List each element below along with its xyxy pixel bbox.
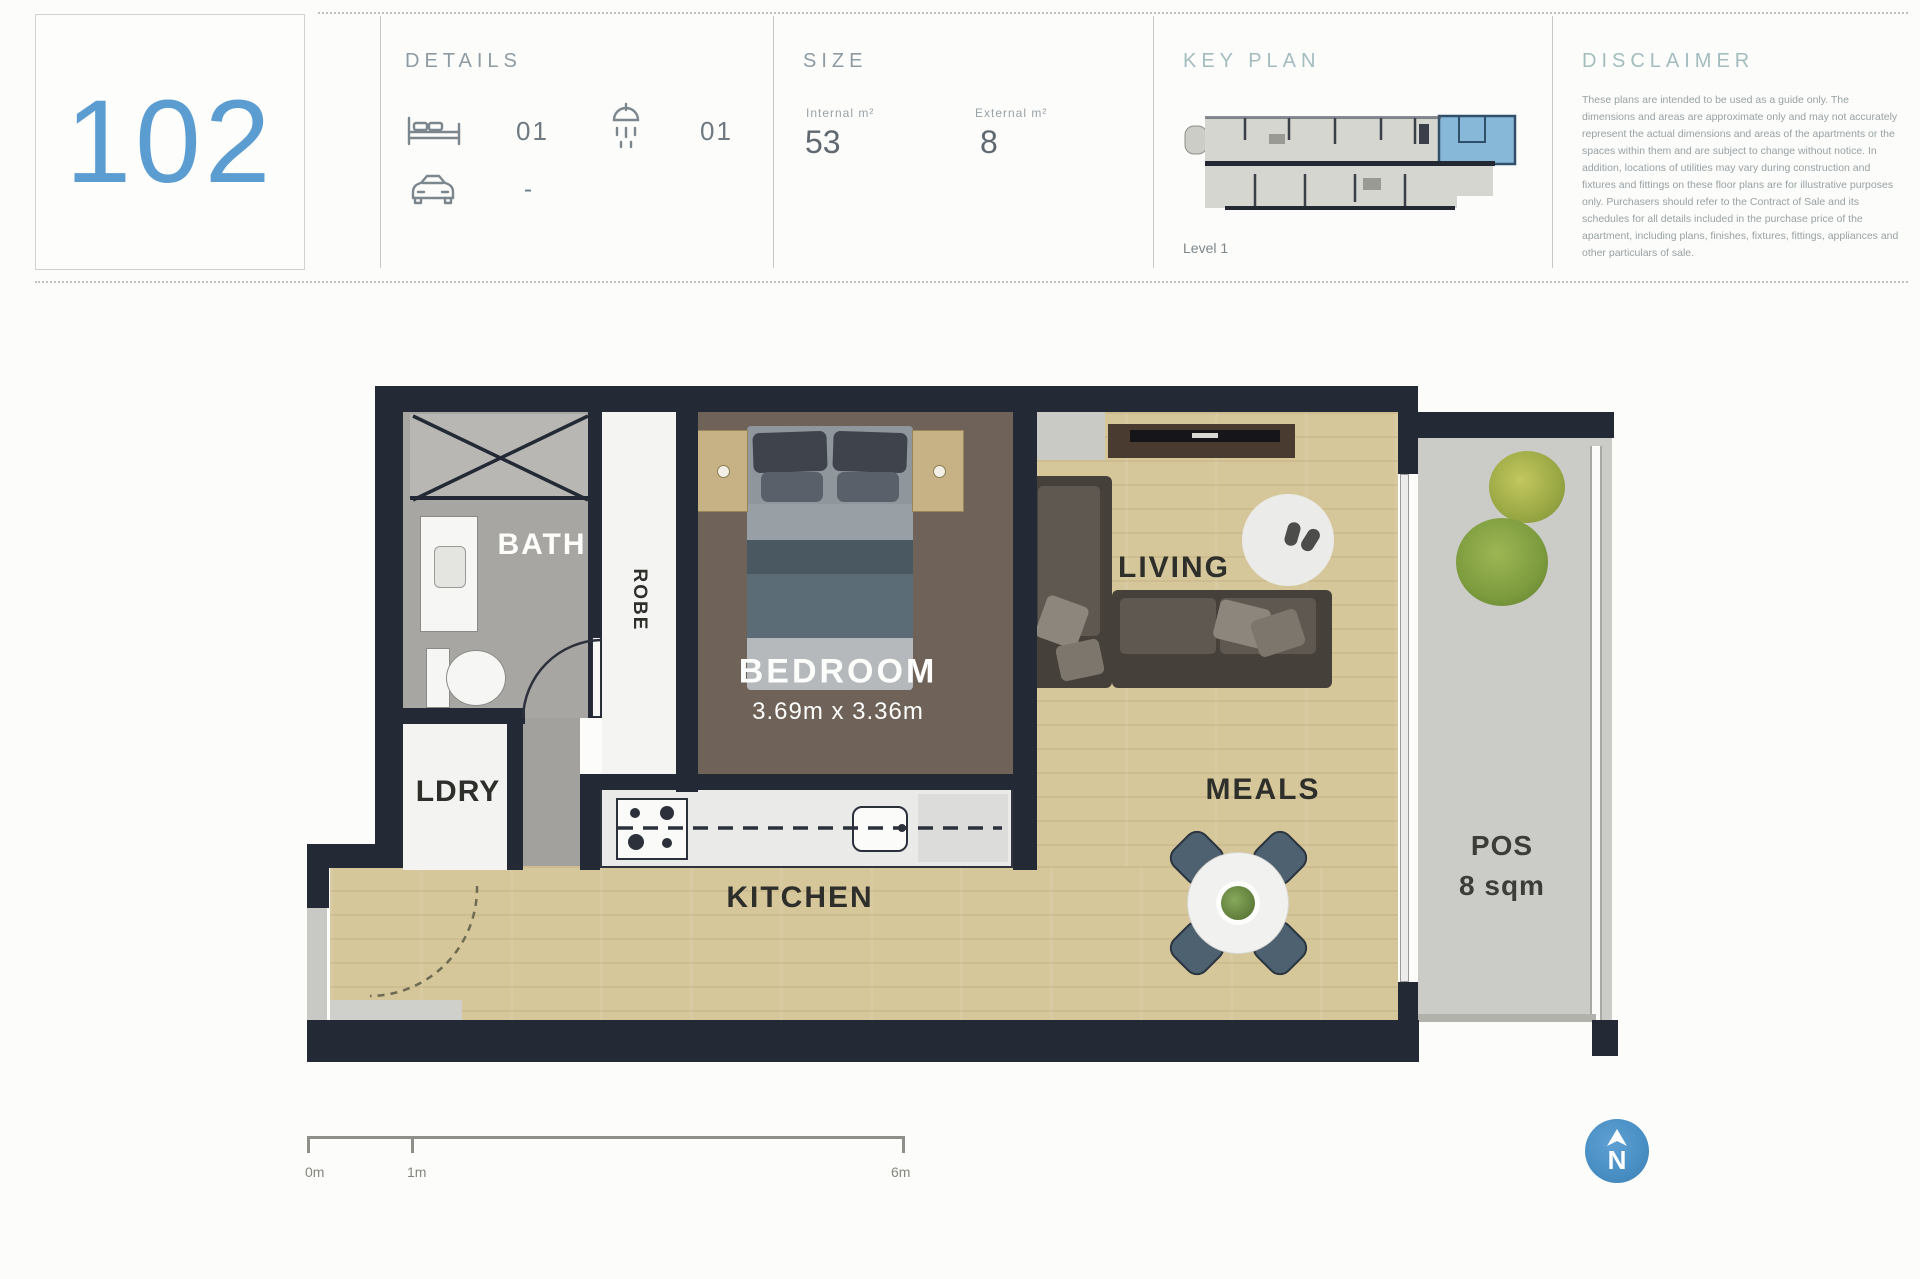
bedside-lamp [933, 465, 946, 478]
cooktop [616, 798, 688, 860]
car-icon [405, 168, 461, 215]
pillow [761, 472, 823, 502]
scale-bar: 0m 1m 6m [307, 1136, 907, 1196]
disclaimer-title: DISCLAIMER [1582, 50, 1754, 73]
robe-room-label: ROBE [628, 569, 650, 632]
bedside-table [696, 430, 748, 512]
entry-threshold [330, 1000, 462, 1020]
parking-count: - [524, 176, 534, 204]
external-size-label: External m² [975, 106, 1047, 120]
sofa-cushion [1120, 598, 1216, 654]
internal-size-label: Internal m² [806, 106, 874, 120]
bath-corridor-floor [523, 718, 580, 866]
scale-label-6m: 6m [891, 1164, 910, 1180]
bathroom-basin [434, 546, 466, 588]
bed-blanket-fold [747, 540, 913, 574]
wall [507, 708, 523, 870]
bed-blanket [747, 574, 913, 638]
pillow [837, 472, 899, 502]
wall [307, 844, 329, 908]
tv-soundbar [1192, 433, 1218, 438]
header-top-dotted-rule [318, 12, 1908, 14]
wall [1398, 982, 1418, 1022]
bedroom-count: 01 [516, 116, 549, 147]
table-plant [1221, 886, 1255, 920]
shower-icon [604, 100, 648, 157]
bed [747, 426, 913, 690]
meals-room-label: MEALS [1206, 773, 1321, 807]
header-divider [773, 16, 774, 268]
header-bottom-dotted-rule [35, 281, 1908, 283]
scale-tick [411, 1136, 414, 1153]
kitchen-room-label: KITCHEN [726, 881, 873, 915]
pos-area-label: 8 sqm [1459, 870, 1545, 902]
key-plan-title: KEY PLAN [1183, 50, 1320, 73]
bathroom-door [592, 637, 601, 717]
wall [580, 774, 600, 870]
wall [676, 412, 698, 792]
wall [1418, 412, 1614, 438]
bedroom-dimensions-label: 3.69m x 3.36m [752, 698, 924, 726]
balcony-bottom-edge [1418, 1014, 1596, 1022]
burner [662, 838, 672, 848]
disclaimer-text: These plans are intended to be used as a… [1582, 92, 1904, 262]
north-compass: N [1585, 1119, 1649, 1183]
unit-number-panel: 102 [35, 14, 305, 270]
unit-number: 102 [66, 74, 275, 210]
scale-bar-line [307, 1136, 905, 1139]
laundry-room-label: LDRY [416, 775, 501, 809]
burner [660, 806, 674, 820]
scale-label-1m: 1m [407, 1164, 426, 1180]
header-divider [380, 16, 381, 268]
scale-tick [902, 1136, 905, 1153]
external-size-value: 8 [980, 124, 998, 161]
kitchen-faucet [898, 824, 906, 832]
header-divider [1153, 16, 1154, 268]
bed-sheet [747, 504, 913, 540]
balcony-balustrade [1590, 446, 1602, 1022]
wall [375, 386, 1418, 412]
bedside-lamp [717, 465, 730, 478]
key-plan-map [1183, 104, 1519, 227]
burner [628, 834, 644, 850]
shower-void-area [410, 414, 590, 500]
wall [375, 386, 403, 858]
wall [1013, 386, 1037, 870]
north-letter: N [1608, 1145, 1627, 1175]
details-title: DETAILS [405, 50, 522, 73]
wall [580, 774, 1035, 790]
internal-size-value: 53 [805, 124, 841, 161]
left-window-sill [307, 908, 327, 1020]
wall [307, 1020, 1419, 1062]
pillow [832, 431, 907, 474]
living-cabinet [1035, 412, 1105, 460]
size-title: SIZE [803, 50, 867, 73]
burner [630, 808, 640, 818]
pillow [752, 431, 827, 474]
bathroom-count: 01 [700, 116, 733, 147]
kitchen-counter-end [918, 794, 1008, 862]
scale-label-0m: 0m [305, 1164, 324, 1180]
wall [1398, 412, 1418, 474]
balcony-sliding-door [1400, 474, 1409, 982]
bedside-table [912, 430, 964, 512]
living-room-label: LIVING [1118, 551, 1230, 585]
bedroom-room-label: BEDROOM [739, 653, 938, 692]
bath-room-label: BATH [497, 528, 586, 562]
pos-room-label: POS [1471, 830, 1533, 862]
balcony-plant [1489, 451, 1565, 523]
scale-tick [307, 1136, 310, 1153]
wall [1592, 1020, 1618, 1056]
bed-icon [405, 110, 463, 155]
toilet-bowl [446, 650, 506, 706]
header-divider [1552, 16, 1553, 268]
key-plan-level-label: Level 1 [1183, 240, 1228, 256]
balcony-plant [1456, 518, 1548, 606]
